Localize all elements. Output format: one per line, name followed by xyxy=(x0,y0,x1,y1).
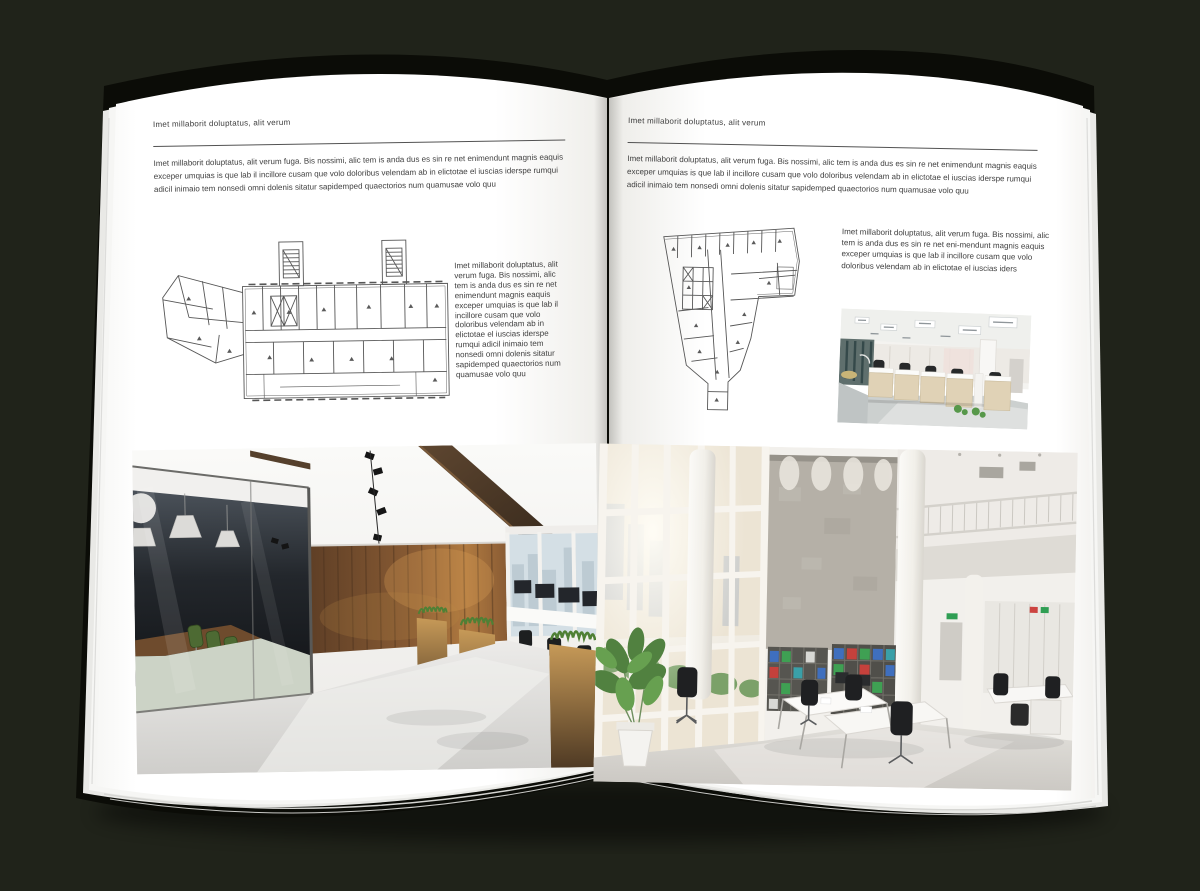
floor-plan-right xyxy=(646,220,812,419)
right-caption: Imet millaborit doluptatus, alit verum f… xyxy=(841,226,1050,275)
right-kicker: Imet millaborit doluptatus, alit verum xyxy=(628,116,766,128)
right-page: Imet millaborit doluptatus, alit verum I… xyxy=(595,92,1101,811)
photo-right-small xyxy=(837,308,1031,429)
left-rule xyxy=(153,140,565,147)
right-intro: Imet millaborit doluptatus, alit verum f… xyxy=(627,153,1048,199)
photo-right-large xyxy=(593,444,1077,791)
concrete-wall xyxy=(766,455,898,651)
left-page: Imet millaborit doluptatus, alit verum I… xyxy=(112,91,615,799)
brochure-mockup: Imet millaborit doluptatus, alit verum I… xyxy=(0,0,1200,891)
left-intro: Imet millaborit doluptatus, alit verum f… xyxy=(153,151,578,196)
photo-left-large xyxy=(132,443,601,774)
glass-meeting-room xyxy=(132,464,312,713)
floor-plan-left xyxy=(158,237,453,410)
right-rule xyxy=(628,142,1038,151)
left-kicker: Imet millaborit doluptatus, alit verum xyxy=(153,118,291,129)
left-caption: Imet millaborit doluptatus, alit verum f… xyxy=(454,259,571,380)
